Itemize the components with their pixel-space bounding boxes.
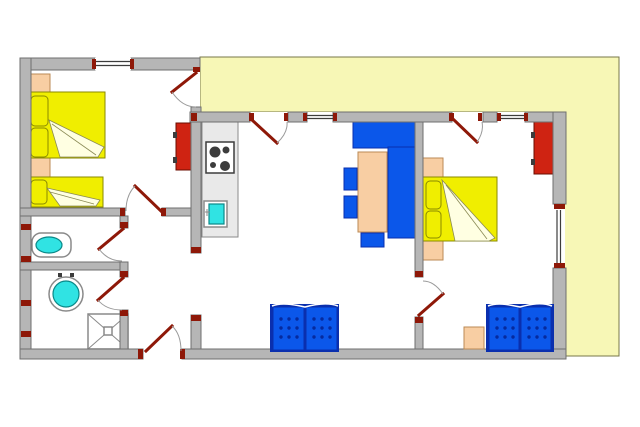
wardrobe	[531, 121, 553, 174]
window	[95, 58, 131, 70]
chair	[344, 196, 357, 218]
double-bed	[28, 92, 105, 158]
pillow	[426, 181, 441, 209]
living-room-sofa	[270, 304, 339, 352]
wardrobe-handle	[531, 159, 535, 165]
double-bed	[423, 177, 497, 241]
burner	[223, 147, 230, 154]
burner	[210, 162, 216, 168]
toilet-bowl	[36, 237, 62, 253]
pillow	[31, 180, 47, 204]
wardrobe	[173, 123, 193, 170]
wardrobe-handle	[531, 132, 535, 138]
wc	[32, 233, 71, 257]
pillow	[426, 211, 441, 238]
pillow	[31, 128, 48, 157]
pillow	[31, 96, 48, 126]
dining-table	[358, 152, 387, 232]
tap	[70, 273, 74, 277]
kitchen-sink	[204, 201, 227, 227]
single-bed	[28, 177, 103, 207]
kitchen	[202, 122, 238, 237]
tap	[58, 273, 62, 277]
side-table	[464, 327, 484, 349]
shower-drain	[104, 327, 112, 335]
toilet	[32, 233, 71, 257]
basin	[53, 281, 79, 307]
apartment-floor-plan	[0, 0, 640, 427]
wardrobe-handle	[173, 157, 177, 163]
stove	[206, 142, 234, 173]
chair	[361, 233, 384, 247]
burner	[210, 147, 221, 158]
wardrobe-handle	[173, 132, 177, 138]
burner	[220, 161, 230, 171]
chair	[344, 168, 357, 190]
floor-plan-page	[0, 0, 640, 427]
